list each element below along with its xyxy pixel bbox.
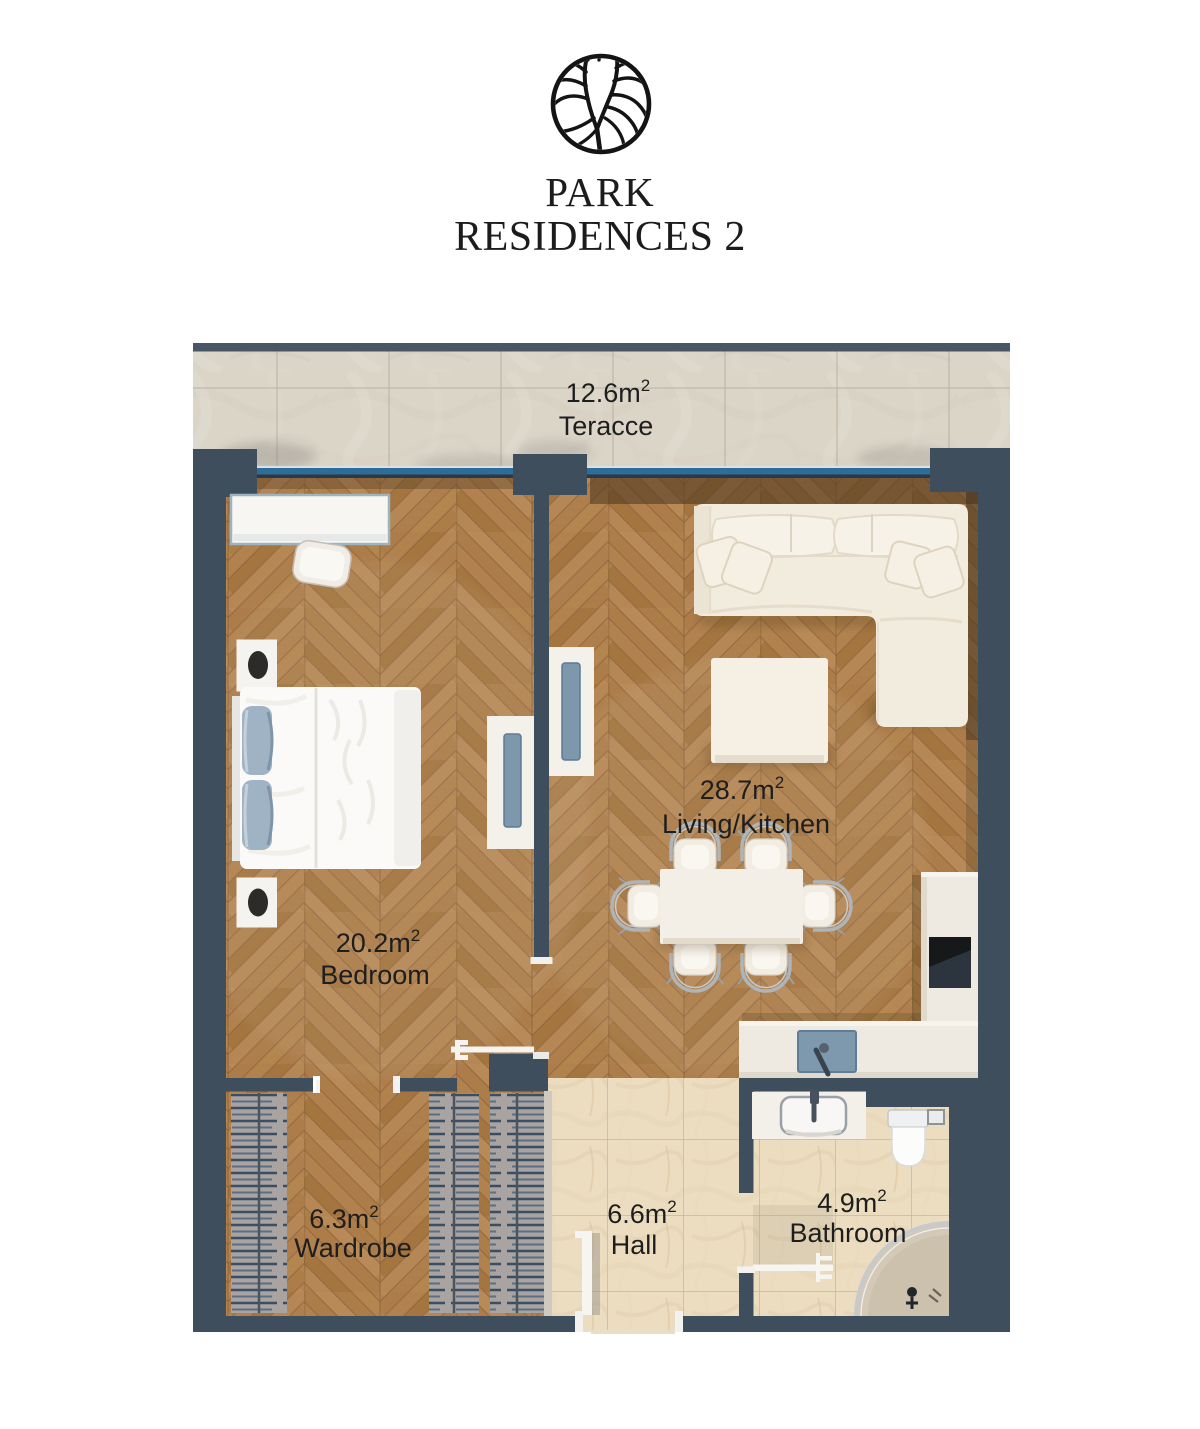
svg-text:12.6m2: 12.6m2: [566, 376, 651, 408]
svg-text:6.6m2: 6.6m2: [607, 1197, 677, 1229]
svg-text:Hall: Hall: [611, 1230, 658, 1260]
svg-text:Teracce: Teracce: [559, 411, 654, 441]
svg-text:PARK: PARK: [545, 169, 655, 215]
svg-text:6.3m2: 6.3m2: [309, 1202, 379, 1234]
svg-text:Bathroom: Bathroom: [789, 1218, 906, 1248]
svg-text:28.7m2: 28.7m2: [700, 773, 785, 805]
svg-text:4.9m2: 4.9m2: [817, 1186, 887, 1218]
svg-text:RESIDENCES 2: RESIDENCES 2: [454, 214, 746, 260]
svg-text:Wardrobe: Wardrobe: [294, 1233, 412, 1263]
svg-text:Living/Kitchen: Living/Kitchen: [662, 809, 830, 839]
svg-text:Bedroom: Bedroom: [320, 960, 430, 990]
svg-text:20.2m2: 20.2m2: [336, 926, 421, 958]
